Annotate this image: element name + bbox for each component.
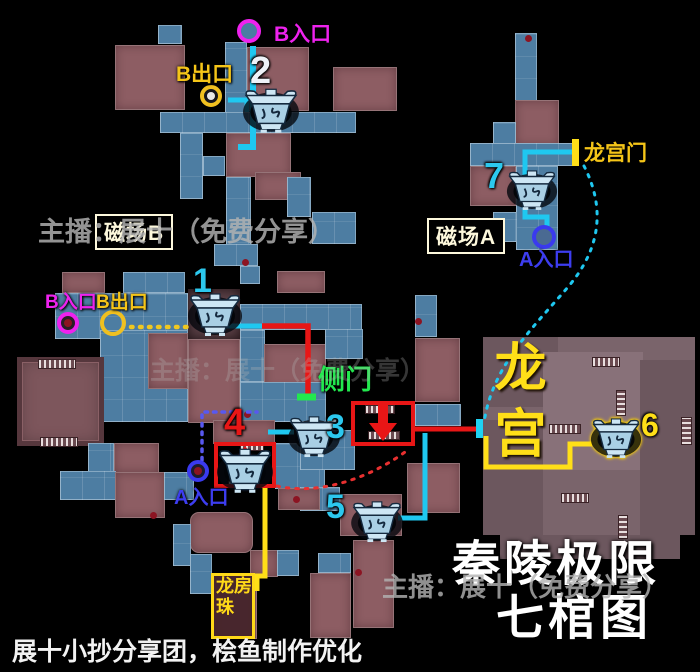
coffin-number-5: 5	[326, 490, 345, 524]
b-entrance-left-circle	[57, 312, 79, 334]
coffin-5	[350, 499, 404, 548]
watermark-top: 主播：展十（免费分享）	[38, 219, 335, 246]
label-b-exit-top: B出口	[176, 64, 233, 86]
circle-dot	[207, 92, 215, 100]
coffin-6	[590, 416, 642, 464]
label-b-exit-left: B出口	[96, 293, 148, 313]
label-dragon-pearl-room: 龙珠房	[211, 573, 255, 639]
label-a-entrance-right: A入口	[519, 250, 573, 271]
coffin-number-2: 2	[250, 52, 271, 90]
map-title-line2: 七棺图	[496, 595, 652, 643]
coffin-icon	[350, 499, 404, 543]
coffin-icon	[506, 168, 558, 211]
coffin-number-1: 1	[193, 264, 212, 298]
credit-text: 展十小抄分享团，桧鱼制作优化	[12, 640, 362, 665]
watermark-middle: 主播：展十（免费分享）	[150, 359, 425, 384]
label-dragon-palace: 龙宫	[489, 340, 541, 472]
coffin-number-3: 3	[326, 410, 345, 444]
coffin-icon	[242, 86, 300, 134]
label-b-entrance-left: B入口	[45, 293, 97, 313]
field-a-box: 磁场A	[427, 218, 505, 254]
label-dragon-palace-gate: 龙宫门	[584, 143, 647, 165]
circle-dot	[64, 319, 72, 327]
route-path	[257, 485, 265, 591]
dragon-gate-marker	[572, 139, 579, 166]
watermark-bottom: 主播：展十（免费分享）	[382, 574, 668, 600]
b-exit-top-circle	[200, 85, 222, 107]
label-b-entrance-top: B入口	[274, 24, 331, 46]
b-entrance-top-circle	[237, 19, 261, 43]
label-a-entrance-bottom: A入口	[174, 488, 228, 509]
a-entrance-right-circle	[532, 225, 556, 249]
coffin-number-7: 7	[484, 158, 504, 194]
palace-entrance-marker	[476, 419, 483, 438]
coffin-number-6: 6	[641, 409, 659, 441]
circle-dot	[194, 467, 202, 475]
coffin-2	[242, 86, 300, 139]
b-exit-left-circle	[100, 310, 126, 336]
map-canvas: 2134567 B入口 B出口 B入口 B出口 A入口 A入口 龙宫门 侧门 龙…	[0, 0, 700, 672]
a-entrance-bottom-circle	[187, 460, 209, 482]
coffin-number-4: 4	[224, 404, 245, 442]
side-door-drop-box	[351, 401, 415, 446]
coffin-7	[506, 168, 558, 216]
coffin-icon	[590, 416, 642, 459]
